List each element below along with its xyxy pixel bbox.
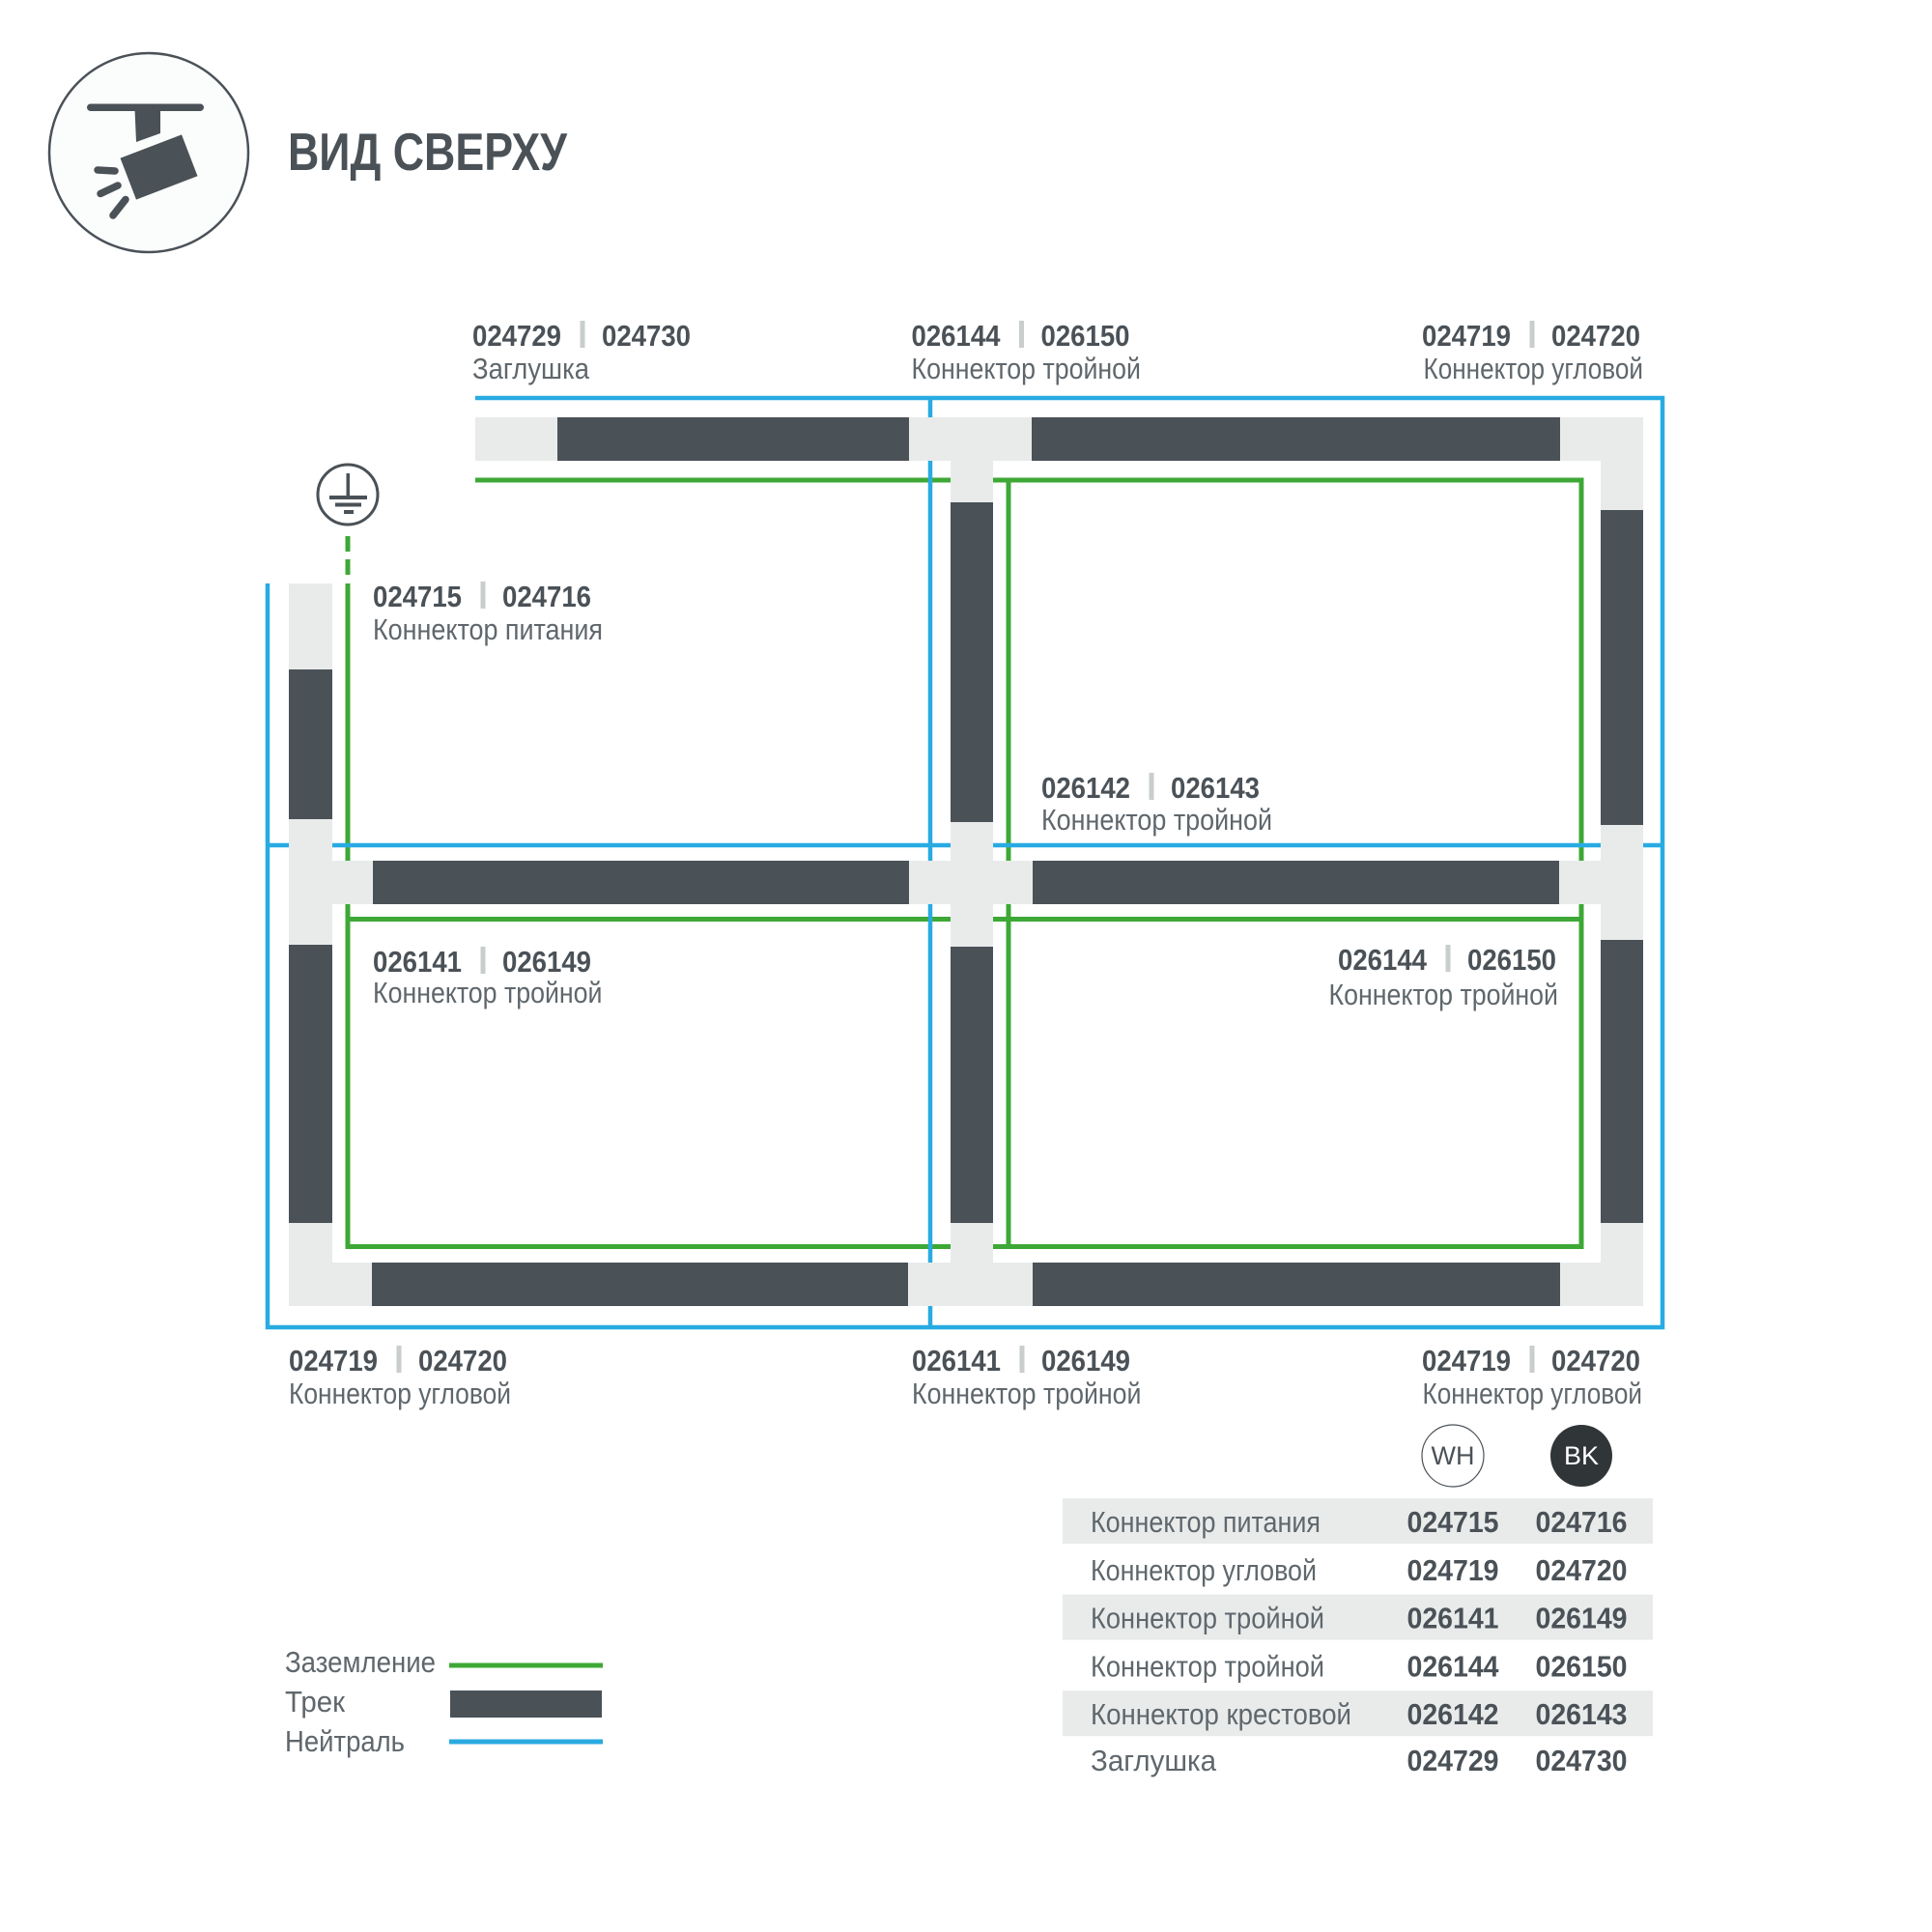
svg-text:026144: 026144 [1338, 943, 1428, 977]
svg-text:024720: 024720 [1536, 1553, 1628, 1587]
svg-text:024719: 024719 [1422, 319, 1511, 353]
svg-text:Коннектор питания: Коннектор питания [373, 612, 603, 646]
svg-text:Коннектор тройной: Коннектор тройной [1091, 1602, 1324, 1635]
svg-text:026150: 026150 [1041, 319, 1130, 353]
svg-text:026141: 026141 [912, 1344, 1001, 1378]
svg-text:Коннектор тройной: Коннектор тройной [1041, 803, 1272, 837]
svg-text:Коннектор угловой: Коннектор угловой [1424, 352, 1644, 385]
svg-text:Нейтраль: Нейтраль [285, 1724, 405, 1758]
svg-text:BK: BK [1564, 1441, 1599, 1470]
svg-text:Трек: Трек [285, 1685, 345, 1719]
svg-text:024719: 024719 [1422, 1344, 1511, 1378]
svg-text:Коннектор тройной: Коннектор тройной [373, 976, 603, 1009]
svg-text:Коннектор тройной: Коннектор тройной [1091, 1649, 1324, 1683]
svg-text:026144: 026144 [912, 319, 1002, 353]
svg-text:026149: 026149 [1041, 1344, 1130, 1378]
svg-text:024715: 024715 [1407, 1505, 1499, 1539]
svg-text:Заглушка: Заглушка [1091, 1744, 1217, 1777]
svg-text:024730: 024730 [1536, 1744, 1628, 1777]
svg-text:WH: WH [1432, 1441, 1475, 1470]
svg-text:026141: 026141 [1407, 1602, 1499, 1635]
svg-text:024729: 024729 [1407, 1744, 1499, 1777]
svg-text:026142: 026142 [1407, 1697, 1499, 1731]
svg-text:024716: 024716 [1536, 1505, 1628, 1539]
svg-text:Заглушка: Заглушка [472, 352, 590, 385]
svg-text:Коннектор тройной: Коннектор тройной [912, 352, 1142, 385]
svg-text:024719: 024719 [289, 1344, 378, 1378]
svg-text:024719: 024719 [1407, 1553, 1499, 1587]
svg-text:026143: 026143 [1171, 771, 1260, 805]
svg-text:Коннектор угловой: Коннектор угловой [289, 1377, 511, 1410]
svg-text:026143: 026143 [1536, 1697, 1628, 1731]
svg-text:024730: 024730 [602, 319, 691, 353]
svg-text:Коннектор угловой: Коннектор угловой [1091, 1553, 1317, 1587]
svg-text:026149: 026149 [1536, 1602, 1628, 1635]
svg-text:Коннектор тройной: Коннектор тройной [912, 1377, 1142, 1410]
svg-text:Коннектор тройной: Коннектор тройной [1329, 978, 1559, 1011]
svg-text:024715: 024715 [373, 580, 462, 613]
svg-text:026150: 026150 [1536, 1649, 1628, 1683]
svg-text:026149: 026149 [502, 945, 591, 979]
svg-text:026142: 026142 [1041, 771, 1130, 805]
svg-text:024720: 024720 [418, 1344, 507, 1378]
svg-text:024729: 024729 [472, 319, 561, 353]
svg-text:Коннектор угловой: Коннектор угловой [1423, 1377, 1643, 1410]
svg-text:026141: 026141 [373, 945, 462, 979]
svg-text:Коннектор питания: Коннектор питания [1091, 1505, 1321, 1539]
svg-text:026150: 026150 [1467, 943, 1556, 977]
svg-text:024716: 024716 [502, 580, 591, 613]
svg-text:024720: 024720 [1551, 319, 1640, 353]
svg-text:026144: 026144 [1407, 1649, 1500, 1683]
svg-text:ВИД СВЕРХУ: ВИД СВЕРХУ [288, 122, 568, 182]
svg-text:Заземление: Заземление [285, 1645, 436, 1679]
svg-text:Коннектор крестовой: Коннектор крестовой [1091, 1697, 1351, 1731]
svg-text:024720: 024720 [1551, 1344, 1640, 1378]
